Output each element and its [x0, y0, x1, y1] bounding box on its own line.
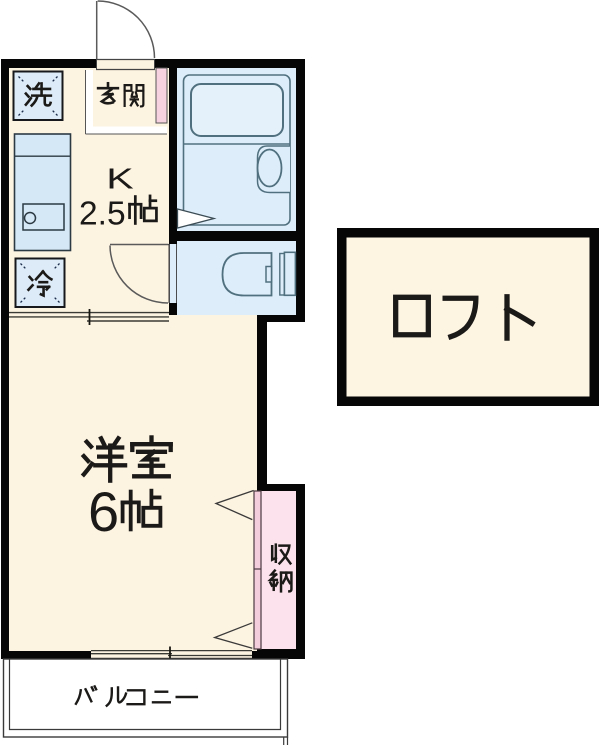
svg-text:2.5: 2.5: [79, 196, 126, 233]
svg-text:6: 6: [88, 480, 119, 543]
svg-text:K: K: [106, 162, 134, 195]
